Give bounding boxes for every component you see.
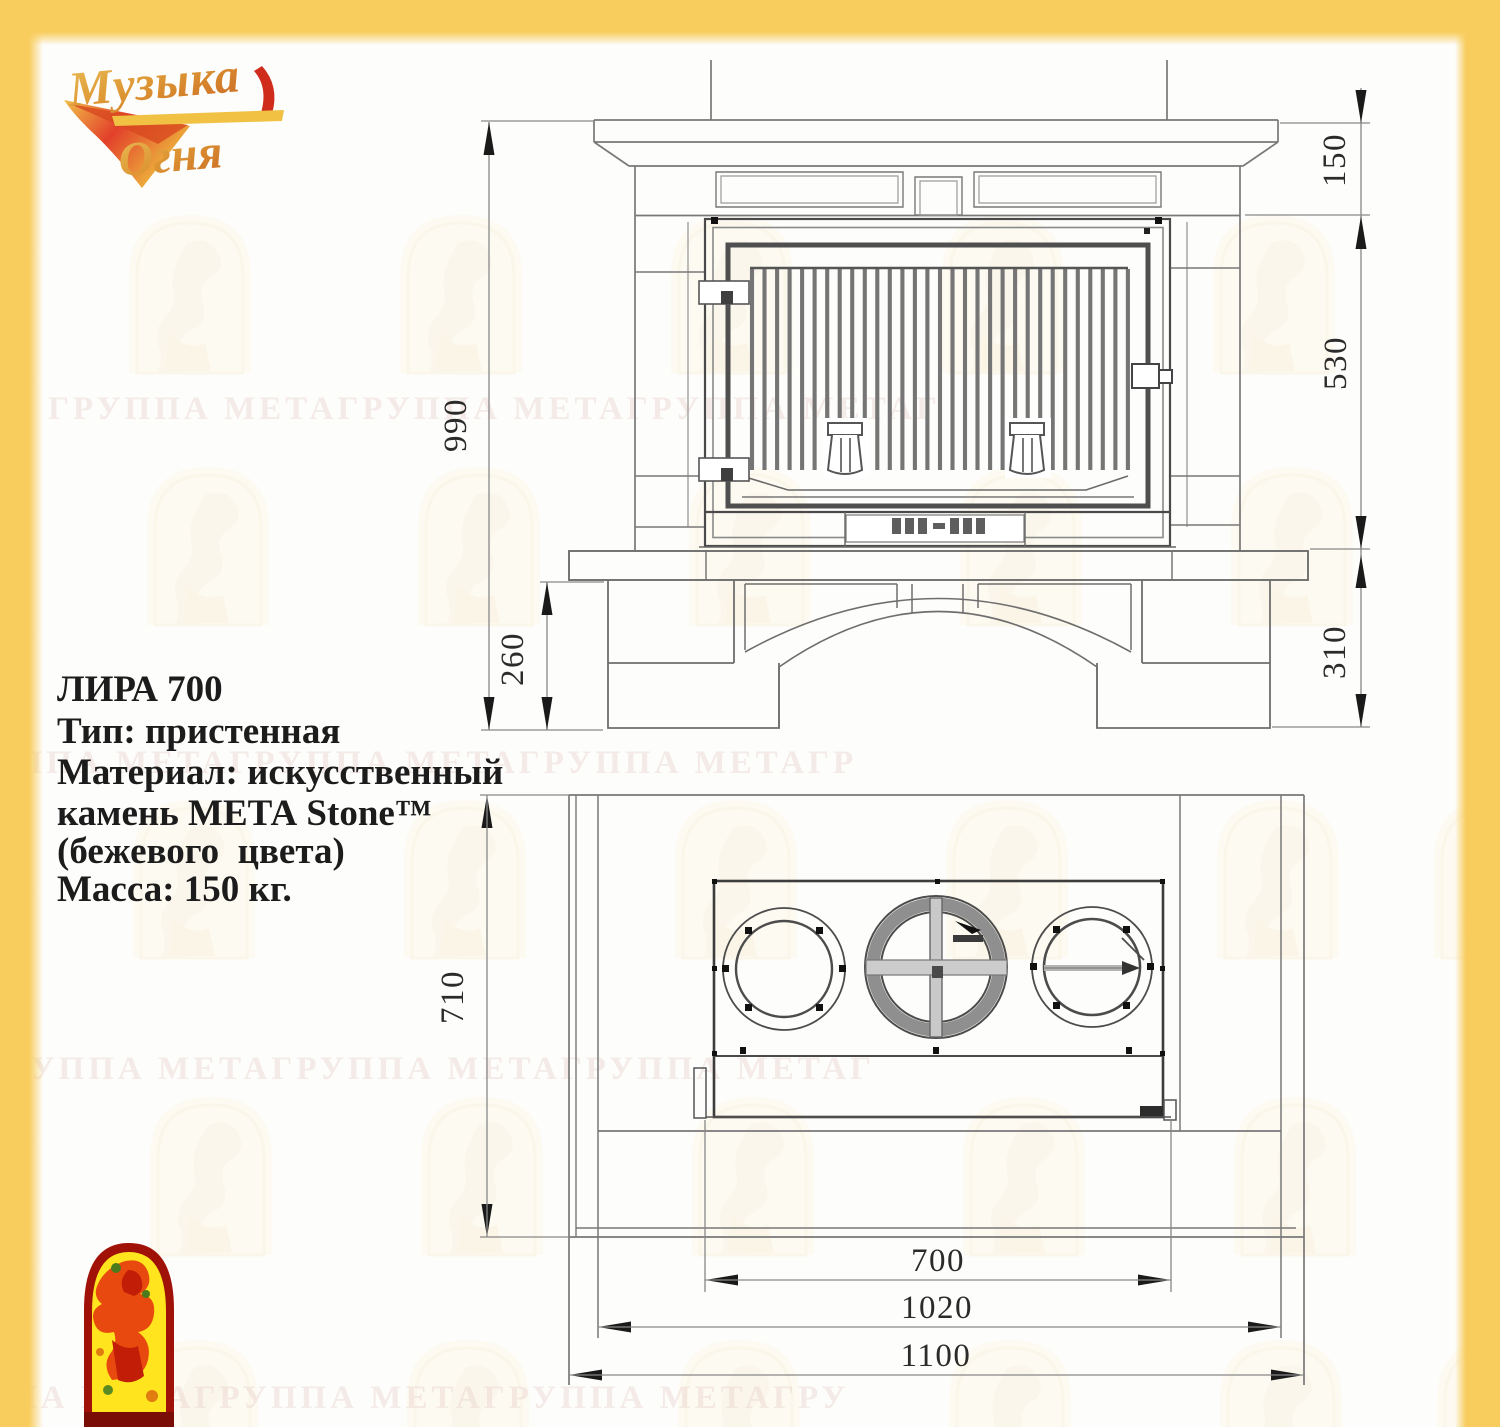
svg-text:Масса: 150 кг.: Масса: 150 кг. [57, 869, 292, 910]
svg-text:150: 150 [1317, 133, 1353, 187]
svg-text:Тип: пристенная: Тип: пристенная [57, 711, 340, 752]
svg-text:700: 700 [911, 1243, 965, 1279]
svg-text:530: 530 [1318, 336, 1354, 390]
svg-text:310: 310 [1317, 625, 1353, 679]
svg-text:990: 990 [438, 398, 474, 452]
svg-text:Материал: искусственный: Материал: искусственный [57, 752, 503, 793]
svg-text:1100: 1100 [901, 1338, 972, 1374]
svg-text:ЛИРА 700: ЛИРА 700 [57, 669, 223, 710]
svg-text:камень МЕТА Stone™: камень МЕТА Stone™ [57, 793, 432, 834]
svg-text:Музыка: Музыка [65, 47, 242, 117]
svg-text:1020: 1020 [901, 1290, 973, 1326]
svg-text:(бежевого цвета): (бежевого цвета) [57, 831, 345, 872]
svg-text:Огня: Огня [116, 125, 224, 187]
svg-text:710: 710 [435, 970, 471, 1024]
svg-text:260: 260 [495, 632, 531, 686]
